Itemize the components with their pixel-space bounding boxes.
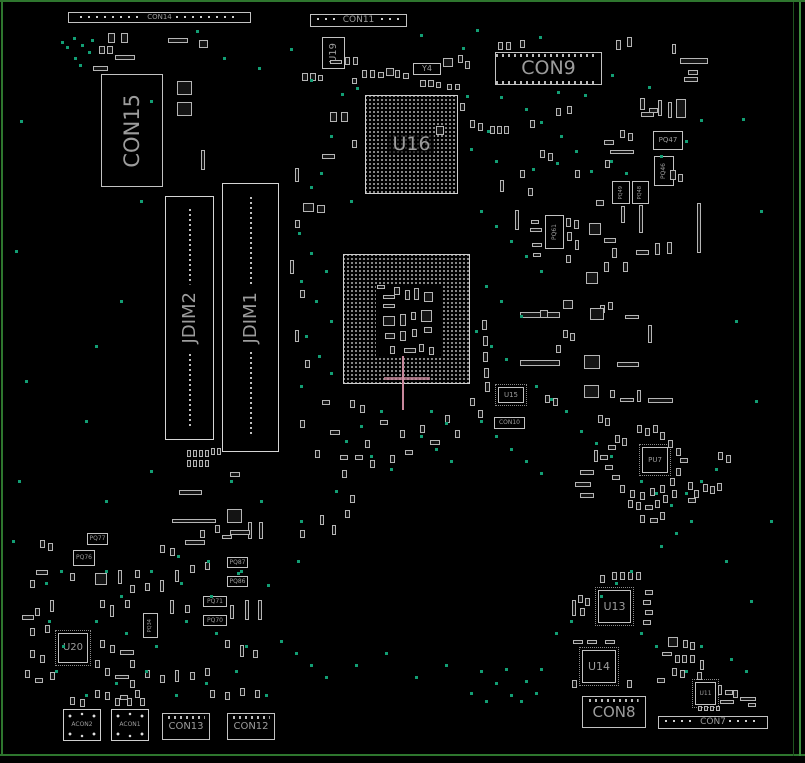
small-part[interactable] <box>604 238 616 243</box>
small-part[interactable] <box>648 325 652 343</box>
small-part[interactable] <box>95 690 100 698</box>
small-part[interactable] <box>688 482 693 490</box>
small-part[interactable] <box>199 460 203 467</box>
small-part[interactable] <box>424 327 432 333</box>
small-part[interactable] <box>302 73 308 81</box>
small-part[interactable] <box>710 486 715 494</box>
small-part[interactable] <box>672 668 677 676</box>
component-pq48[interactable]: PQ48 <box>632 181 649 204</box>
small-part[interactable] <box>697 203 701 253</box>
small-part[interactable] <box>455 84 460 90</box>
small-part[interactable] <box>30 650 35 658</box>
small-part[interactable] <box>411 312 416 320</box>
component-pq49[interactable]: PQ49 <box>612 181 630 204</box>
small-part[interactable] <box>365 440 370 448</box>
small-part[interactable] <box>608 302 613 310</box>
small-part[interactable] <box>497 126 502 134</box>
small-part[interactable] <box>623 262 628 272</box>
small-part[interactable] <box>580 470 594 475</box>
component-bga-center[interactable] <box>343 254 470 384</box>
small-part[interactable] <box>520 170 525 178</box>
small-part[interactable] <box>211 448 215 455</box>
small-part[interactable] <box>645 505 653 510</box>
small-part[interactable] <box>620 485 625 493</box>
small-part[interactable] <box>240 645 244 657</box>
small-part[interactable] <box>342 470 347 478</box>
small-part[interactable] <box>394 287 400 295</box>
small-part[interactable] <box>483 352 488 362</box>
small-part[interactable] <box>377 285 385 289</box>
small-part[interactable] <box>345 57 350 65</box>
small-part[interactable] <box>470 398 475 406</box>
component-jdim1[interactable]: JDIM1 <box>222 183 279 452</box>
small-part[interactable] <box>110 605 114 617</box>
small-part[interactable] <box>201 150 205 170</box>
small-part[interactable] <box>657 678 665 683</box>
small-part[interactable] <box>135 690 140 698</box>
small-part[interactable] <box>645 610 653 615</box>
small-part[interactable] <box>70 573 75 581</box>
small-part[interactable] <box>25 670 30 678</box>
small-part[interactable] <box>678 174 683 182</box>
small-part[interactable] <box>225 692 230 700</box>
small-part[interactable] <box>680 58 708 64</box>
small-part[interactable] <box>605 418 610 426</box>
small-part[interactable] <box>130 660 135 668</box>
small-part[interactable] <box>575 240 579 250</box>
small-part[interactable] <box>199 450 203 457</box>
small-part[interactable] <box>676 448 681 456</box>
component-u20[interactable]: U20 <box>58 633 88 663</box>
small-part[interactable] <box>515 210 519 230</box>
small-part[interactable] <box>332 525 336 535</box>
small-part[interactable] <box>190 565 195 573</box>
small-part[interactable] <box>643 600 651 605</box>
small-part[interactable] <box>230 472 240 477</box>
small-part[interactable] <box>716 706 720 711</box>
small-part[interactable] <box>636 502 641 510</box>
small-part[interactable] <box>45 625 50 633</box>
small-part[interactable] <box>531 220 539 224</box>
component-u16[interactable]: U16 <box>365 95 458 194</box>
small-part[interactable] <box>421 310 432 322</box>
small-part[interactable] <box>578 595 583 603</box>
small-part[interactable] <box>458 55 463 63</box>
small-part[interactable] <box>120 650 134 655</box>
component-jdim2[interactable]: JDIM2 <box>165 196 214 440</box>
small-part[interactable] <box>676 468 681 476</box>
small-part[interactable] <box>412 329 417 337</box>
small-part[interactable] <box>300 290 305 298</box>
small-part[interactable] <box>566 218 571 227</box>
small-part[interactable] <box>145 583 150 591</box>
component-con8[interactable]: CON8 <box>582 696 646 728</box>
small-part[interactable] <box>187 460 191 467</box>
small-part[interactable] <box>540 310 548 318</box>
small-part[interactable] <box>115 55 135 60</box>
small-part[interactable] <box>300 530 305 538</box>
small-part[interactable] <box>405 290 410 300</box>
small-part[interactable] <box>718 685 722 695</box>
small-part[interactable] <box>726 455 731 463</box>
small-part[interactable] <box>390 346 395 354</box>
small-part[interactable] <box>36 570 48 575</box>
small-part[interactable] <box>428 80 434 87</box>
small-part[interactable] <box>700 660 704 670</box>
small-part[interactable] <box>160 580 164 592</box>
small-part[interactable] <box>703 484 708 492</box>
small-part[interactable] <box>172 519 216 523</box>
small-part[interactable] <box>643 620 651 625</box>
small-part[interactable] <box>627 37 632 47</box>
small-part[interactable] <box>345 510 350 518</box>
small-part[interactable] <box>350 400 355 408</box>
small-part[interactable] <box>48 543 53 551</box>
small-part[interactable] <box>200 530 205 538</box>
small-part[interactable] <box>420 425 425 433</box>
small-part[interactable] <box>620 572 625 580</box>
small-part[interactable] <box>185 540 205 545</box>
small-part[interactable] <box>230 530 250 535</box>
small-part[interactable] <box>352 78 357 84</box>
component-pq87[interactable]: PQ87 <box>227 557 248 568</box>
small-part[interactable] <box>205 668 210 676</box>
small-part[interactable] <box>177 102 192 116</box>
small-part[interactable] <box>482 320 487 330</box>
small-part[interactable] <box>130 680 135 688</box>
small-part[interactable] <box>404 348 416 353</box>
small-part[interactable] <box>230 605 234 619</box>
small-part[interactable] <box>615 435 620 443</box>
small-part[interactable] <box>748 703 756 707</box>
small-part[interactable] <box>484 368 489 378</box>
small-part[interactable] <box>688 498 696 503</box>
small-part[interactable] <box>420 80 426 87</box>
small-part[interactable] <box>622 438 627 446</box>
small-part[interactable] <box>506 42 511 50</box>
small-part[interactable] <box>383 304 395 308</box>
small-part[interactable] <box>455 430 460 438</box>
small-part[interactable] <box>40 655 45 663</box>
small-part[interactable] <box>383 316 395 326</box>
small-part[interactable] <box>563 300 573 309</box>
small-part[interactable] <box>385 333 395 339</box>
small-part[interactable] <box>380 420 388 425</box>
small-part[interactable] <box>530 120 535 128</box>
small-part[interactable] <box>429 347 434 355</box>
small-part[interactable] <box>460 103 465 111</box>
small-part[interactable] <box>295 330 299 342</box>
small-part[interactable] <box>127 698 132 706</box>
small-part[interactable] <box>170 548 175 556</box>
component-pq47[interactable]: PQ47 <box>653 131 683 150</box>
component-con9[interactable]: CON9 <box>495 52 602 85</box>
small-part[interactable] <box>217 448 221 455</box>
small-part[interactable] <box>675 655 680 663</box>
small-part[interactable] <box>504 126 509 134</box>
component-con14[interactable]: CON14 <box>68 12 251 23</box>
small-part[interactable] <box>330 430 340 435</box>
small-part[interactable] <box>290 260 294 274</box>
small-part[interactable] <box>580 493 594 498</box>
small-part[interactable] <box>684 77 698 82</box>
small-part[interactable] <box>35 678 43 683</box>
small-part[interactable] <box>586 272 598 284</box>
component-pq76[interactable]: PQ76 <box>73 550 95 566</box>
small-part[interactable] <box>694 490 699 498</box>
small-part[interactable] <box>710 706 714 711</box>
small-part[interactable] <box>668 440 673 448</box>
small-part[interactable] <box>690 642 695 650</box>
small-part[interactable] <box>135 570 140 578</box>
small-part[interactable] <box>520 360 560 366</box>
small-part[interactable] <box>447 84 452 90</box>
small-part[interactable] <box>628 133 633 141</box>
component-pq61[interactable]: PQ61 <box>545 215 564 249</box>
small-part[interactable] <box>403 73 409 79</box>
small-part[interactable] <box>100 600 105 608</box>
small-part[interactable] <box>697 672 702 680</box>
small-part[interactable] <box>259 522 263 539</box>
small-part[interactable] <box>95 573 107 585</box>
small-part[interactable] <box>341 112 348 122</box>
component-con12[interactable]: CON12 <box>227 713 275 740</box>
small-part[interactable] <box>350 495 355 503</box>
small-part[interactable] <box>608 445 616 450</box>
small-part[interactable] <box>35 608 40 616</box>
small-part[interactable] <box>532 243 542 247</box>
component-u14[interactable]: U14 <box>582 650 616 683</box>
small-part[interactable] <box>641 112 654 117</box>
small-part[interactable] <box>575 482 591 487</box>
small-part[interactable] <box>663 495 668 503</box>
small-part[interactable] <box>470 120 475 128</box>
small-part[interactable] <box>718 452 723 460</box>
small-part[interactable] <box>465 61 470 69</box>
small-part[interactable] <box>395 70 400 78</box>
small-part[interactable] <box>680 458 688 463</box>
small-part[interactable] <box>40 540 45 548</box>
small-part[interactable] <box>370 460 375 468</box>
small-part[interactable] <box>378 72 384 78</box>
small-part[interactable] <box>662 652 672 656</box>
small-part[interactable] <box>175 670 179 682</box>
small-part[interactable] <box>637 425 642 433</box>
small-part[interactable] <box>676 99 686 118</box>
small-part[interactable] <box>587 640 597 644</box>
small-part[interactable] <box>160 675 165 683</box>
small-part[interactable] <box>596 200 604 206</box>
small-part[interactable] <box>177 81 192 95</box>
small-part[interactable] <box>628 572 633 580</box>
small-part[interactable] <box>130 585 135 593</box>
small-part[interactable] <box>22 615 34 620</box>
small-part[interactable] <box>295 220 300 228</box>
small-part[interactable] <box>548 153 553 161</box>
small-part[interactable] <box>107 46 113 54</box>
small-part[interactable] <box>570 333 575 341</box>
small-part[interactable] <box>683 640 688 648</box>
small-part[interactable] <box>110 645 115 653</box>
small-part[interactable] <box>436 126 444 135</box>
small-part[interactable] <box>670 170 676 180</box>
small-part[interactable] <box>330 112 337 122</box>
component-con13[interactable]: CON13 <box>162 713 210 740</box>
small-part[interactable] <box>179 490 202 495</box>
component-u15[interactable]: U15 <box>498 387 524 403</box>
component-pu7[interactable]: PU7 <box>642 447 668 473</box>
small-part[interactable] <box>315 450 320 458</box>
small-part[interactable] <box>645 428 650 436</box>
small-part[interactable] <box>533 253 541 257</box>
component-u19[interactable]: U19 <box>322 37 345 69</box>
small-part[interactable] <box>672 44 676 54</box>
small-part[interactable] <box>95 660 100 668</box>
small-part[interactable] <box>658 100 662 116</box>
small-part[interactable] <box>566 255 571 263</box>
small-part[interactable] <box>353 57 358 65</box>
small-part[interactable] <box>655 243 660 255</box>
small-part[interactable] <box>383 295 395 299</box>
small-part[interactable] <box>500 180 504 192</box>
small-part[interactable] <box>70 697 75 705</box>
small-part[interactable] <box>617 362 639 367</box>
component-pq86[interactable]: PQ86 <box>227 576 248 587</box>
small-part[interactable] <box>604 140 614 145</box>
small-part[interactable] <box>419 344 424 352</box>
small-part[interactable] <box>485 382 490 392</box>
small-part[interactable] <box>322 154 335 159</box>
small-part[interactable] <box>105 692 110 700</box>
small-part[interactable] <box>698 706 702 711</box>
small-part[interactable] <box>584 355 600 369</box>
small-part[interactable] <box>30 580 35 588</box>
small-part[interactable] <box>733 690 738 698</box>
small-part[interactable] <box>639 205 643 233</box>
small-part[interactable] <box>690 655 695 663</box>
small-part[interactable] <box>210 690 215 698</box>
small-part[interactable] <box>318 75 323 81</box>
small-part[interactable] <box>589 223 601 235</box>
small-part[interactable] <box>612 248 617 258</box>
small-part[interactable] <box>253 650 258 658</box>
small-part[interactable] <box>255 690 260 698</box>
small-part[interactable] <box>604 262 609 272</box>
small-part[interactable] <box>498 42 503 50</box>
small-part[interactable] <box>612 475 620 480</box>
small-part[interactable] <box>170 600 174 614</box>
small-part[interactable] <box>424 292 433 302</box>
small-part[interactable] <box>605 640 615 644</box>
small-part[interactable] <box>682 655 687 663</box>
small-part[interactable] <box>620 130 625 138</box>
small-part[interactable] <box>628 500 633 508</box>
small-part[interactable] <box>400 331 406 341</box>
small-part[interactable] <box>390 455 395 463</box>
small-part[interactable] <box>193 450 197 457</box>
small-part[interactable] <box>645 590 653 595</box>
small-part[interactable] <box>362 70 367 78</box>
small-part[interactable] <box>115 698 120 706</box>
small-part[interactable] <box>478 123 483 131</box>
small-part[interactable] <box>572 600 576 616</box>
small-part[interactable] <box>600 455 608 460</box>
component-pq70[interactable]: PQ70 <box>203 615 227 626</box>
small-part[interactable] <box>436 82 441 88</box>
small-part[interactable] <box>303 203 314 212</box>
component-y4[interactable]: Y4 <box>413 63 441 75</box>
component-pq77[interactable]: PQ77 <box>87 533 108 545</box>
small-part[interactable] <box>300 420 305 428</box>
small-part[interactable] <box>400 314 406 326</box>
small-part[interactable] <box>740 697 756 701</box>
small-part[interactable] <box>30 628 35 636</box>
small-part[interactable] <box>414 288 419 300</box>
small-part[interactable] <box>704 706 708 711</box>
small-part[interactable] <box>355 455 363 460</box>
small-part[interactable] <box>574 220 579 229</box>
small-part[interactable] <box>668 102 672 118</box>
small-part[interactable] <box>621 206 625 223</box>
small-part[interactable] <box>670 478 675 486</box>
small-part[interactable] <box>668 637 678 647</box>
small-part[interactable] <box>50 672 55 680</box>
small-part[interactable] <box>160 545 165 553</box>
small-part[interactable] <box>636 250 649 255</box>
small-part[interactable] <box>190 672 195 680</box>
small-part[interactable] <box>567 232 572 241</box>
small-part[interactable] <box>540 150 545 158</box>
small-part[interactable] <box>584 385 599 398</box>
small-part[interactable] <box>317 205 325 213</box>
small-part[interactable] <box>585 598 590 606</box>
small-part[interactable] <box>443 58 453 67</box>
small-part[interactable] <box>625 315 639 319</box>
small-part[interactable] <box>640 492 645 500</box>
small-part[interactable] <box>720 700 734 704</box>
small-part[interactable] <box>140 698 145 706</box>
small-part[interactable] <box>610 390 615 398</box>
small-part[interactable] <box>637 390 641 402</box>
small-part[interactable] <box>650 518 658 523</box>
small-part[interactable] <box>205 562 210 570</box>
small-part[interactable] <box>636 572 641 580</box>
small-part[interactable] <box>370 70 375 78</box>
small-part[interactable] <box>567 106 572 114</box>
small-part[interactable] <box>660 432 665 440</box>
small-part[interactable] <box>205 450 209 457</box>
small-part[interactable] <box>616 40 621 50</box>
small-part[interactable] <box>330 60 342 64</box>
small-part[interactable] <box>93 66 108 71</box>
small-part[interactable] <box>660 512 665 520</box>
small-part[interactable] <box>717 483 722 491</box>
small-part[interactable] <box>490 126 495 134</box>
small-part[interactable] <box>205 460 209 467</box>
small-part[interactable] <box>667 242 672 254</box>
small-part[interactable] <box>688 70 698 75</box>
component-pq34[interactable]: PQ34 <box>143 613 158 638</box>
small-part[interactable] <box>563 330 568 338</box>
small-part[interactable] <box>605 465 613 470</box>
small-part[interactable] <box>50 600 54 612</box>
small-part[interactable] <box>118 570 122 584</box>
small-part[interactable] <box>478 410 483 418</box>
small-part[interactable] <box>630 490 635 498</box>
component-con11[interactable]: CON11 <box>310 14 407 27</box>
small-part[interactable] <box>360 405 365 413</box>
small-part[interactable] <box>320 515 324 525</box>
